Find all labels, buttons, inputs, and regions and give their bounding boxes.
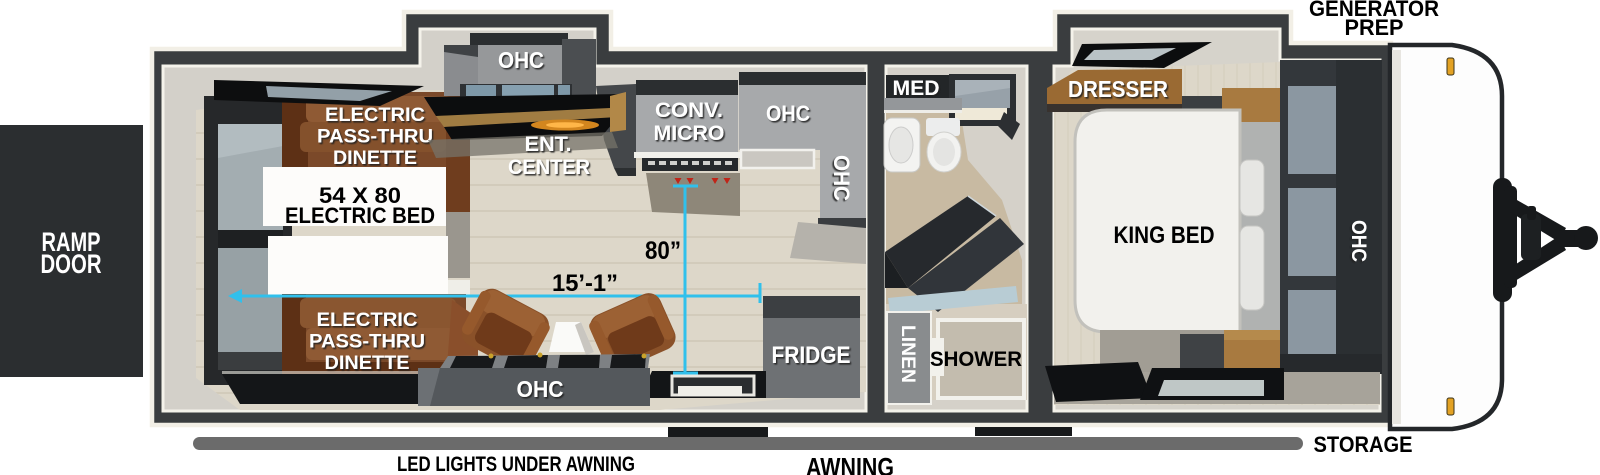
svg-text:OHC: OHC (517, 376, 564, 402)
svg-text:ENT.: ENT. (525, 133, 572, 156)
svg-text:CENTER: CENTER (508, 156, 590, 179)
svg-text:PASS-THRU: PASS-THRU (317, 126, 433, 148)
svg-text:LINEN: LINEN (897, 325, 918, 383)
svg-text:DINETTE: DINETTE (325, 352, 410, 374)
svg-text:ELECTRIC: ELECTRIC (325, 104, 425, 126)
svg-text:PREP: PREP (1345, 15, 1404, 40)
svg-text:OHC: OHC (1347, 220, 1370, 262)
svg-text:OHC: OHC (829, 155, 854, 201)
svg-text:DINETTE: DINETTE (333, 147, 417, 169)
svg-text:AWNING: AWNING (806, 452, 894, 475)
svg-text:KING BED: KING BED (1114, 222, 1215, 249)
svg-text:OHC: OHC (766, 101, 810, 126)
svg-text:OHC: OHC (498, 47, 544, 73)
svg-text:LED LIGHTS UNDER AWNING: LED LIGHTS UNDER AWNING (397, 453, 635, 475)
svg-text:ELECTRIC: ELECTRIC (317, 309, 418, 331)
svg-text:CONV.: CONV. (655, 99, 723, 122)
svg-text:STORAGE: STORAGE (1314, 432, 1413, 457)
svg-text:PASS-THRU: PASS-THRU (309, 331, 425, 353)
svg-text:FRIDGE: FRIDGE (772, 342, 851, 369)
svg-text:15’-1”: 15’-1” (552, 270, 618, 297)
svg-text:MICRO: MICRO (654, 122, 725, 145)
svg-text:DOOR: DOOR (41, 249, 102, 279)
svg-text:SHOWER: SHOWER (930, 348, 1022, 371)
svg-text:80”: 80” (645, 237, 681, 265)
svg-text:DRESSER: DRESSER (1068, 76, 1168, 102)
svg-text:ELECTRIC BED: ELECTRIC BED (285, 203, 435, 228)
svg-text:MED: MED (893, 77, 940, 100)
